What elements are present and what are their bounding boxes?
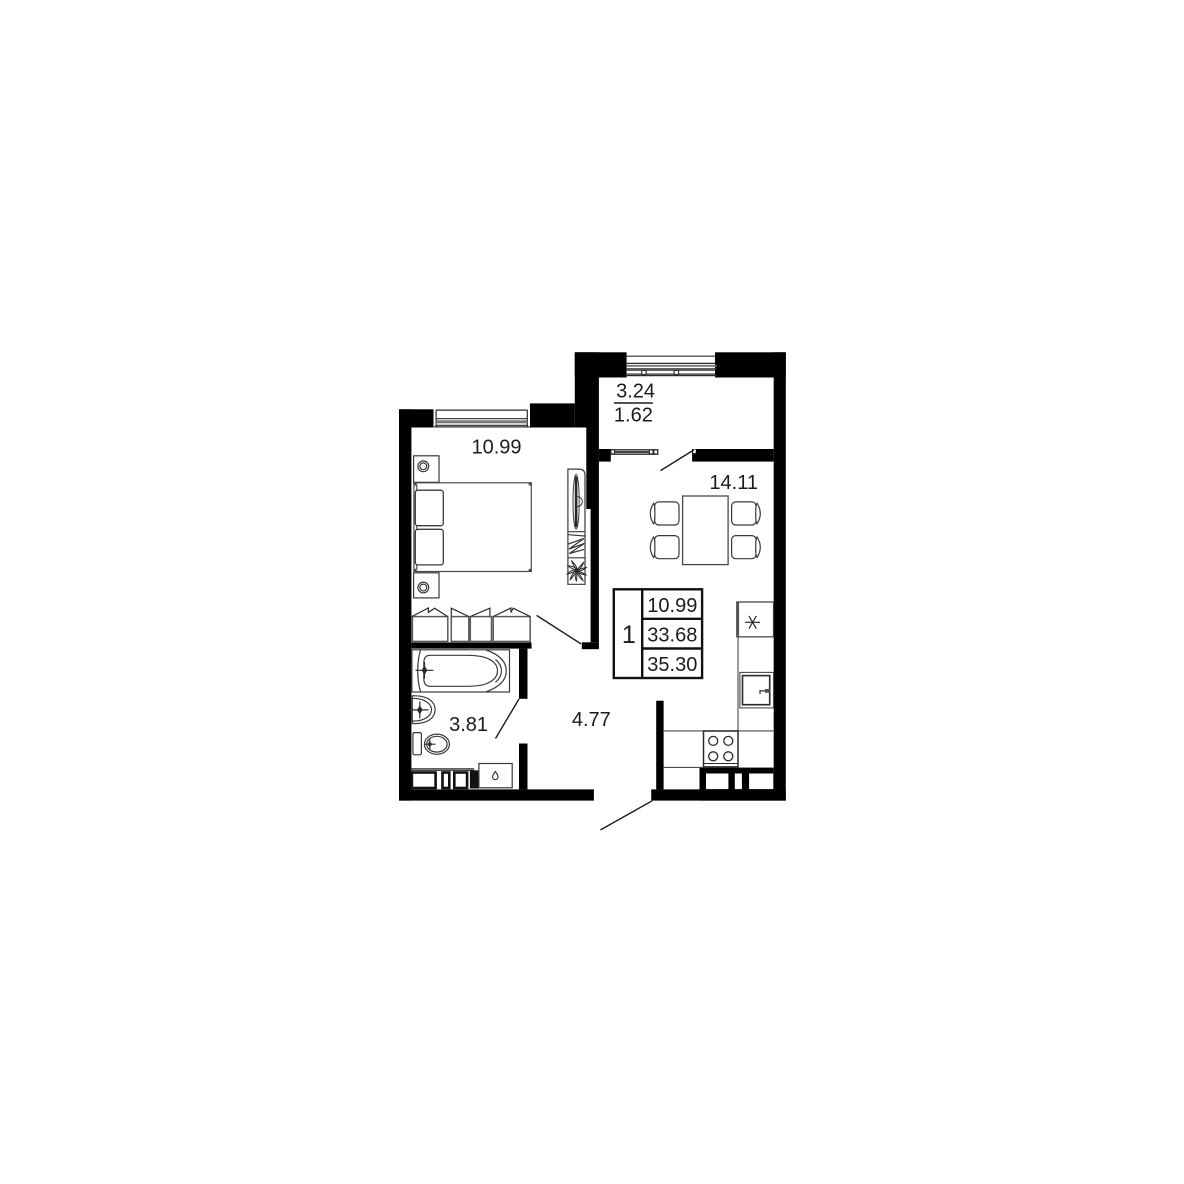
svg-text:3.81: 3.81 <box>449 714 488 736</box>
svg-text:1: 1 <box>622 621 636 649</box>
svg-text:10.99: 10.99 <box>471 437 521 459</box>
svg-text:14.11: 14.11 <box>709 472 758 494</box>
svg-text:3.24: 3.24 <box>616 381 655 403</box>
svg-text:33.68: 33.68 <box>647 625 697 647</box>
svg-text:35.30: 35.30 <box>647 654 697 676</box>
svg-text:10.99: 10.99 <box>647 595 697 617</box>
svg-text:1.62: 1.62 <box>614 405 653 427</box>
svg-text:4.77: 4.77 <box>572 709 611 731</box>
